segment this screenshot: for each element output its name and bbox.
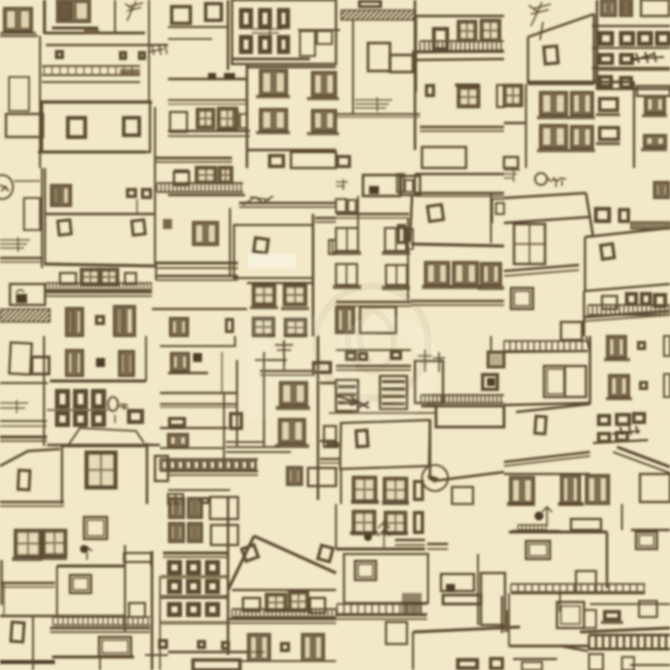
svg-text:FO: FO	[236, 284, 444, 452]
